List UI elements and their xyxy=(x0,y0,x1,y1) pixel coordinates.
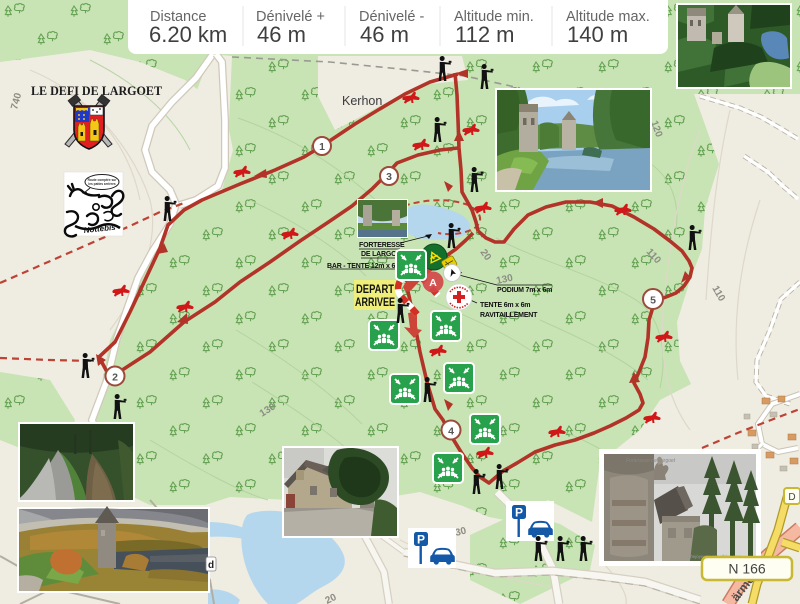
svg-text:140 m: 140 m xyxy=(567,22,628,47)
svg-text:3: 3 xyxy=(386,171,392,183)
svg-text:1: 1 xyxy=(319,141,325,153)
svg-text:les pattes arrières: les pattes arrières xyxy=(88,182,116,186)
svg-text:Forteresse de Largoet: Forteresse de Largoet xyxy=(626,458,676,464)
svg-text:46 m: 46 m xyxy=(257,22,306,47)
svg-text:PODIUM 7m x 6m: PODIUM 7m x 6m xyxy=(497,287,552,294)
svg-text:N 166: N 166 xyxy=(728,561,766,577)
svg-text:RAVITAILLEMENT: RAVITAILLEMENT xyxy=(480,312,538,319)
svg-text:46 m: 46 m xyxy=(360,22,409,47)
svg-text:5: 5 xyxy=(650,295,656,307)
svg-text:A: A xyxy=(429,277,437,289)
svg-text:112 m: 112 m xyxy=(455,22,515,47)
svg-text:Kerhon: Kerhon xyxy=(342,94,382,108)
svg-text:ARRIVEE: ARRIVEE xyxy=(355,297,395,309)
svg-text:FORTERESSE: FORTERESSE xyxy=(359,242,405,249)
svg-text:D: D xyxy=(788,492,795,503)
svg-text:TENTE 6m x 6m: TENTE 6m x 6m xyxy=(480,302,530,309)
svg-text:4: 4 xyxy=(448,426,454,438)
svg-text:d: d xyxy=(208,560,214,571)
svg-text:2: 2 xyxy=(112,372,118,384)
svg-text:LE DEFI DE LARGOET: LE DEFI DE LARGOET xyxy=(31,83,162,98)
svg-text:DEPART: DEPART xyxy=(356,284,394,296)
svg-text:6.20 km: 6.20 km xyxy=(149,22,227,47)
